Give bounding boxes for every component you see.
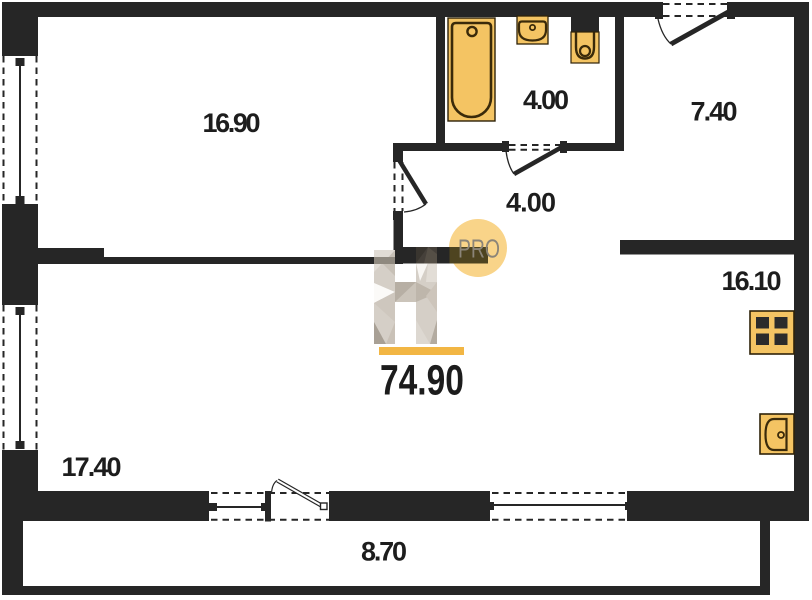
svg-text:4.00: 4.00 [506,188,556,218]
svg-text:8.70: 8.70 [361,537,407,567]
svg-text:16.90: 16.90 [203,108,261,138]
svg-text:17.40: 17.40 [62,452,122,482]
svg-text:16.10: 16.10 [722,266,782,296]
svg-text:PRO: PRO [458,234,500,264]
svg-text:7.40: 7.40 [691,97,738,127]
svg-text:4.00: 4.00 [523,85,569,115]
svg-text:74.90: 74.90 [380,357,464,405]
